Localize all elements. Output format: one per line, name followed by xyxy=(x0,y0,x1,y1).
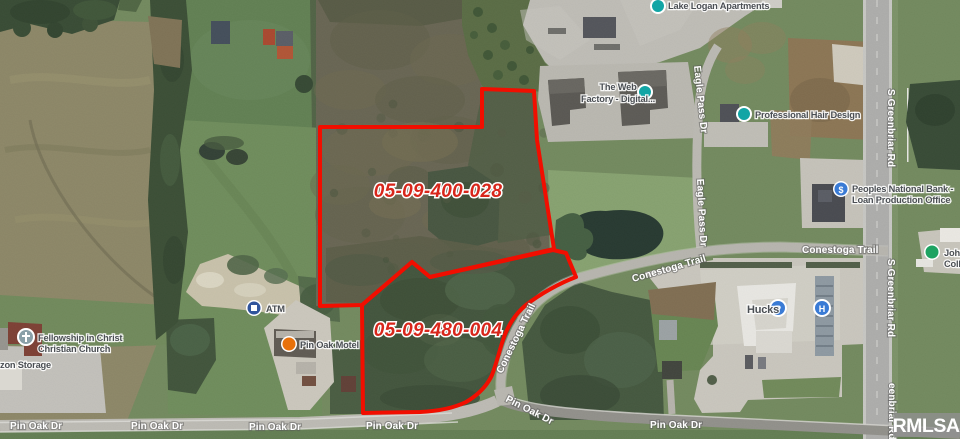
svg-text:Hucks: Hucks xyxy=(747,304,779,316)
svg-text:Pin Oak Dr: Pin Oak Dr xyxy=(10,421,62,432)
svg-text:H: H xyxy=(819,304,826,314)
svg-text:Factory - Digital...: Factory - Digital... xyxy=(581,94,655,104)
svg-text:S Greenbriar Rd: S Greenbriar Rd xyxy=(885,259,896,337)
svg-text:The Web: The Web xyxy=(599,82,637,92)
svg-text:Pin Oak Dr: Pin Oak Dr xyxy=(131,421,183,432)
svg-text:RMLSA: RMLSA xyxy=(893,415,960,437)
svg-text:Christian Church: Christian Church xyxy=(38,344,111,354)
svg-text:Loan Production Office: Loan Production Office xyxy=(852,195,950,205)
svg-text:Fellowship in Christ: Fellowship in Christ xyxy=(38,333,122,343)
svg-text:Colle: Colle xyxy=(944,259,960,269)
svg-text:John: John xyxy=(944,248,960,258)
svg-text:Conestoga Trail: Conestoga Trail xyxy=(802,245,879,256)
svg-text:zon Storage: zon Storage xyxy=(0,360,51,370)
svg-text:Pin Oak Dr: Pin Oak Dr xyxy=(650,420,702,431)
svg-text:$: $ xyxy=(838,185,843,195)
svg-text:Lake Logan Apartments: Lake Logan Apartments xyxy=(668,1,769,11)
svg-text:Pin Oak Motel: Pin Oak Motel xyxy=(300,340,359,350)
svg-text:Pin Oak Dr: Pin Oak Dr xyxy=(366,421,418,432)
svg-text:05-09-480-004: 05-09-480-004 xyxy=(374,320,503,341)
svg-text:Professional Hair Design: Professional Hair Design xyxy=(755,110,861,120)
svg-text:Peoples National Bank -: Peoples National Bank - xyxy=(852,184,953,194)
svg-text:Pin Oak Dr: Pin Oak Dr xyxy=(249,422,301,433)
svg-text:ATM: ATM xyxy=(266,304,285,314)
svg-text:S Greenbriar Rd: S Greenbriar Rd xyxy=(885,89,896,167)
svg-text:05-09-400-028: 05-09-400-028 xyxy=(374,181,503,202)
